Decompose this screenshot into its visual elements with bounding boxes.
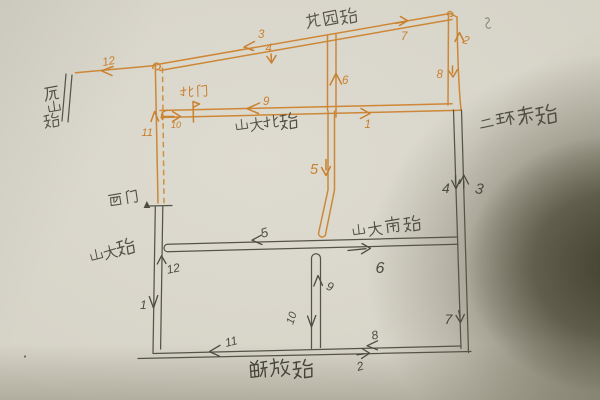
svg-text:12: 12 (165, 260, 181, 277)
svg-text:6: 6 (376, 260, 385, 277)
svg-text:11: 11 (223, 333, 238, 350)
svg-text:6: 6 (342, 75, 349, 87)
svg-text:11: 11 (142, 127, 153, 139)
svg-text:5: 5 (310, 162, 319, 178)
svg-text:12: 12 (101, 55, 116, 69)
svg-text:1: 1 (365, 119, 371, 131)
svg-text:7: 7 (401, 31, 408, 43)
svg-text:10: 10 (171, 120, 181, 130)
svg-text:4: 4 (442, 180, 450, 196)
svg-text:10: 10 (284, 310, 299, 326)
svg-text:8: 8 (437, 69, 444, 81)
svg-text:3: 3 (258, 29, 265, 41)
svg-text:7: 7 (445, 311, 454, 327)
svg-text:3: 3 (474, 180, 485, 198)
svg-text:1: 1 (140, 298, 147, 312)
svg-text:2: 2 (354, 358, 366, 374)
svg-text:5: 5 (259, 224, 271, 241)
svg-text:9: 9 (324, 279, 335, 295)
svg-text:4: 4 (266, 43, 272, 55)
svg-text:9: 9 (263, 96, 270, 108)
svg-text:8: 8 (370, 328, 380, 343)
